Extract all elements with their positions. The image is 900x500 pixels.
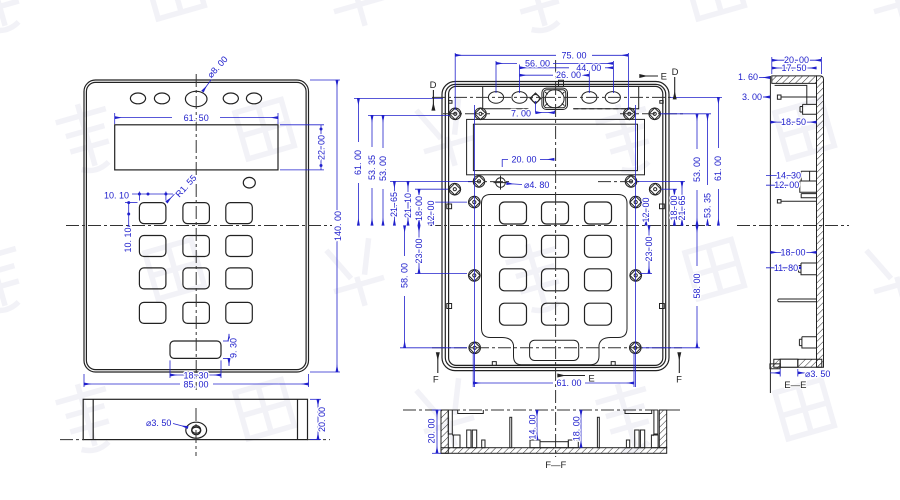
- svg-text:10. 10: 10. 10: [104, 191, 129, 201]
- svg-text:20. 00: 20. 00: [317, 407, 327, 432]
- svg-text:61. 00: 61. 00: [353, 150, 363, 175]
- svg-text:58. 00: 58. 00: [692, 273, 702, 298]
- svg-text:21. 65: 21. 65: [389, 192, 399, 217]
- svg-text:21. 65: 21. 65: [677, 195, 687, 220]
- svg-text:12. 00: 12. 00: [774, 180, 799, 190]
- svg-text:21. 10: 21. 10: [403, 193, 413, 218]
- svg-text:11. 80: 11. 80: [774, 263, 798, 273]
- svg-text:3. 00: 3. 00: [742, 92, 762, 102]
- svg-text:12. 00: 12. 00: [426, 200, 436, 225]
- svg-text:10. 10: 10. 10: [123, 227, 133, 252]
- svg-text:E: E: [661, 72, 667, 83]
- svg-text:E—E: E—E: [784, 380, 806, 391]
- svg-text:⌀4. 80: ⌀4. 80: [524, 180, 549, 190]
- svg-text:61. 00: 61. 00: [556, 378, 581, 388]
- svg-text:23. 00: 23. 00: [414, 238, 424, 263]
- svg-text:17. 50: 17. 50: [781, 63, 806, 73]
- svg-text:F: F: [676, 375, 682, 386]
- svg-text:9. 30: 9. 30: [229, 338, 239, 358]
- svg-text:18. 00: 18. 00: [414, 196, 424, 221]
- svg-text:D: D: [672, 67, 679, 78]
- svg-text:53. 35: 53. 35: [702, 193, 712, 218]
- svg-text:61. 50: 61. 50: [184, 113, 209, 123]
- svg-text:12. 00: 12. 00: [641, 197, 651, 222]
- svg-text:⌀3. 50: ⌀3. 50: [805, 369, 830, 379]
- svg-text:18. 00: 18. 00: [572, 416, 582, 441]
- svg-text:75. 00: 75. 00: [561, 50, 586, 60]
- svg-text:22. 00: 22. 00: [317, 135, 327, 160]
- svg-text:53. 00: 53. 00: [692, 157, 702, 182]
- svg-text:14. 30: 14. 30: [776, 170, 801, 180]
- svg-text:140. 00: 140. 00: [333, 211, 343, 241]
- svg-text:E: E: [588, 374, 594, 385]
- svg-text:1. 60: 1. 60: [738, 72, 758, 82]
- svg-text:D: D: [430, 80, 437, 91]
- svg-text:F—F: F—F: [545, 460, 566, 471]
- svg-text:F: F: [433, 375, 439, 386]
- svg-text:58. 00: 58. 00: [399, 263, 409, 288]
- svg-text:61. 00: 61. 00: [713, 156, 723, 181]
- svg-text:⌀3. 50: ⌀3. 50: [146, 418, 171, 428]
- svg-text:20. 00: 20. 00: [511, 154, 536, 164]
- svg-text:20. 00: 20. 00: [427, 418, 437, 443]
- svg-text:18. 50: 18. 50: [781, 117, 806, 127]
- svg-text:7. 00: 7. 00: [511, 109, 531, 119]
- svg-text:85. 00: 85. 00: [183, 380, 208, 390]
- svg-text:53. 00: 53. 00: [378, 156, 388, 181]
- svg-text:23. 00: 23. 00: [644, 236, 654, 261]
- svg-text:26. 00: 26. 00: [556, 70, 581, 80]
- svg-text:56. 00: 56. 00: [525, 58, 550, 68]
- svg-text:53. 35: 53. 35: [367, 155, 377, 180]
- svg-text:14. 00: 14. 00: [528, 414, 538, 439]
- svg-text:18. 00: 18. 00: [780, 247, 805, 257]
